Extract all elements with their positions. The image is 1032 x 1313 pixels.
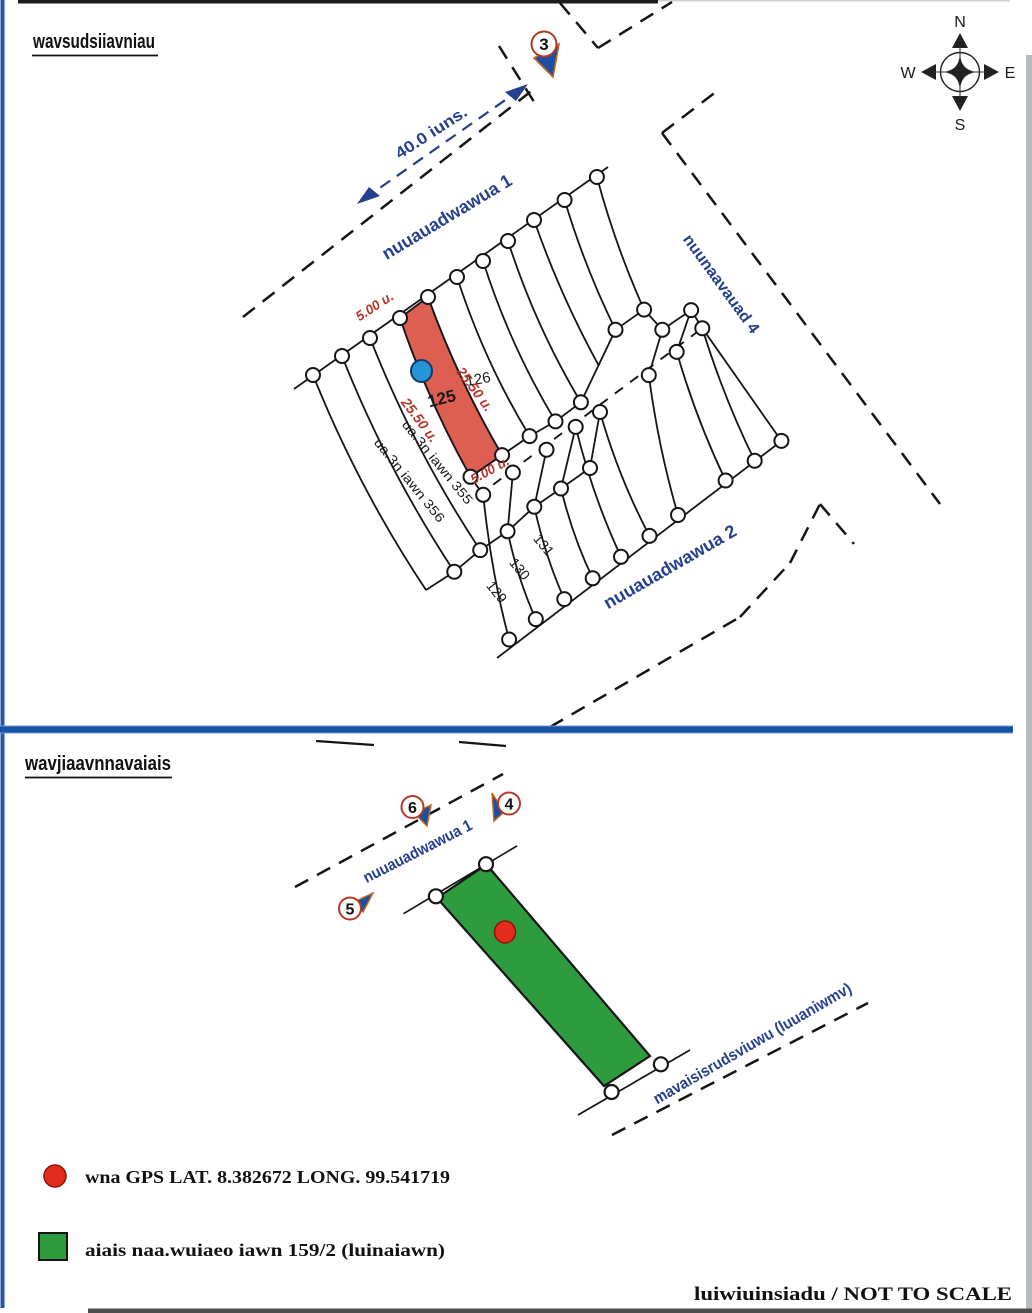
- svg-text:W: W: [900, 65, 916, 82]
- svg-text:aiais naa.wuiaeo iawn 159/2 (l: aiais naa.wuiaeo iawn 159/2 (luinaiawn): [85, 1240, 445, 1261]
- svg-text:nuuauadwawua 1: nuuauadwawua 1: [361, 817, 476, 887]
- svg-text:nuuauadwawua 1: nuuauadwawua 1: [378, 170, 515, 263]
- svg-text:nuunaavauad 4: nuunaavauad 4: [679, 232, 762, 338]
- svg-text:wna GPS LAT. 8.382672 LONG. 9: wna GPS LAT. 8.382672 LONG. 99.541719: [85, 1167, 450, 1187]
- svg-text:129: 129: [483, 578, 510, 606]
- svg-text:5.00 u.: 5.00 u.: [353, 288, 396, 323]
- svg-text:wavsudsiiavniau: wavsudsiiavniau: [32, 31, 155, 53]
- svg-text:nuuauadwawua 2: nuuauadwawua 2: [600, 521, 740, 613]
- svg-text:4: 4: [505, 797, 514, 814]
- svg-text:6: 6: [408, 800, 417, 817]
- svg-text:131: 131: [530, 531, 557, 559]
- svg-text:E: E: [1005, 65, 1016, 82]
- svg-text:wavjiaavnnavaiais: wavjiaavnnavaiais: [24, 753, 171, 775]
- svg-text:mavaisisrudsviuwu (luuaniwmv): mavaisisrudsviuwu (luuaniwmv): [651, 980, 855, 1108]
- svg-text:N: N: [954, 14, 966, 31]
- svg-text:luiwiuinsiadu / NOT TO SCALE: luiwiuinsiadu / NOT TO SCALE: [694, 1284, 1012, 1305]
- svg-text:5: 5: [346, 902, 355, 919]
- svg-text:130: 130: [506, 555, 533, 583]
- svg-text:3: 3: [539, 35, 548, 54]
- svg-text:S: S: [955, 117, 966, 134]
- svg-text:40.0 iuns.: 40.0 iuns.: [393, 104, 471, 163]
